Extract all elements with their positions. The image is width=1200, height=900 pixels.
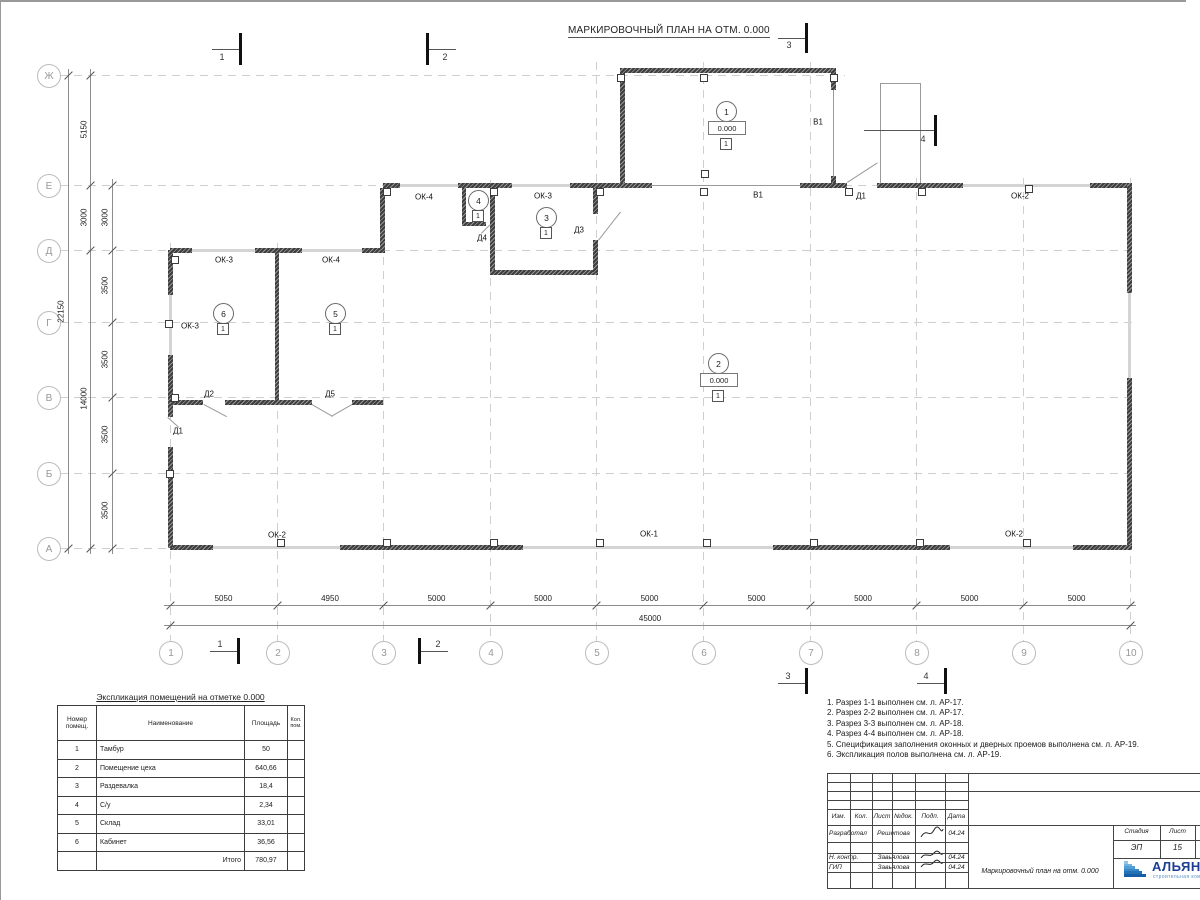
legend-cell: 1 <box>58 741 97 760</box>
tb-line <box>827 773 1200 774</box>
legend-table: Номер помещ. Наименование Площадь Кол. п… <box>57 705 305 871</box>
legend-row: 2Помещение цеха640,66 <box>58 759 305 778</box>
signature <box>919 859 944 870</box>
axis-bubble-row: А <box>37 537 61 561</box>
column-marker <box>596 188 604 196</box>
wall-segment <box>380 188 385 250</box>
wall-segment <box>170 248 192 253</box>
tb-line <box>827 862 968 863</box>
wall-segment <box>1073 545 1132 550</box>
legend-cell: Кабинет <box>97 833 245 852</box>
floor-type-marker: 1 <box>720 138 732 150</box>
legend-col-num: Номер помещ. <box>58 706 97 741</box>
signature <box>919 825 944 841</box>
section-cut-line <box>917 683 944 684</box>
tb-line <box>1113 840 1200 841</box>
tb-line <box>850 773 851 888</box>
dim-value: 45000 <box>625 614 675 623</box>
opening-label: Д2 <box>204 390 214 399</box>
section-cut-bar <box>944 668 947 694</box>
legend-col-area: Площадь <box>245 706 288 741</box>
wall-segment <box>462 222 486 226</box>
floor-type-marker: 1 <box>217 323 229 335</box>
opening-line <box>880 83 921 84</box>
window-glazing <box>400 184 458 187</box>
room-number: 3 <box>536 207 557 228</box>
tb-role-developer: Разработал <box>829 830 867 837</box>
tb-role-gip: ГИП <box>829 864 842 871</box>
dim-value: 3500 <box>101 490 110 530</box>
section-cut-bar <box>805 23 808 53</box>
opening-line <box>880 83 881 183</box>
column-marker <box>700 74 708 82</box>
legend-row: 5Склад33,01 <box>58 815 305 834</box>
drawing-title: МАРКИРОВОЧНЫЙ ПЛАН НА ОТМ. 0.000 <box>568 25 770 38</box>
door-swing <box>847 162 878 182</box>
tb-date-gip: 04.24 <box>945 864 968 871</box>
legend-cell: Помещение цеха <box>97 759 245 778</box>
opening-label: ОК-4 <box>415 193 433 202</box>
section-cut-line <box>429 49 456 50</box>
tb-stage-header: Стадия <box>1113 828 1160 835</box>
legend-cell: 4 <box>58 796 97 815</box>
dim-line <box>164 605 1136 606</box>
tb-line <box>1113 825 1114 888</box>
legend-cell: Итого <box>97 852 245 871</box>
legend-cell: 2,34 <box>245 796 288 815</box>
sheet-frame-line <box>0 2 1 889</box>
tb-date-developer: 04.24 <box>945 830 968 837</box>
section-cut-bar <box>237 638 240 664</box>
legend-row: 1Тамбур50 <box>58 741 305 760</box>
legend-cell <box>58 852 97 871</box>
tb-line <box>915 773 916 888</box>
section-cut-line <box>421 651 448 652</box>
column-marker <box>171 256 179 264</box>
room-number: 2 <box>708 353 729 374</box>
column-marker <box>383 539 391 547</box>
floor-type-marker: 1 <box>540 227 552 239</box>
axis-line-col <box>596 62 597 662</box>
tb-line <box>872 773 873 888</box>
tb-name-ncontrol: Завьялова <box>872 854 915 861</box>
legend-cell: 640,66 <box>245 759 288 778</box>
tb-line <box>827 800 968 801</box>
axis-bubble-col: 10 <box>1119 641 1143 665</box>
legend-cell <box>288 815 305 834</box>
tb-line <box>827 773 828 888</box>
column-marker <box>171 394 179 402</box>
opening-label: ОК-2 <box>1011 192 1029 201</box>
opening-label: В1 <box>753 191 763 200</box>
axis-bubble-row: Е <box>37 174 61 198</box>
tb-line <box>1160 825 1161 858</box>
legend-cell <box>288 833 305 852</box>
section-label: 4 <box>923 671 928 681</box>
dim-value: 4950 <box>305 594 355 603</box>
room-elevation: 0.000 <box>708 121 746 135</box>
tb-line <box>827 888 1200 889</box>
opening-label: Д3 <box>574 226 584 235</box>
opening-label: ОК-4 <box>322 256 340 265</box>
tb-line <box>827 842 968 843</box>
section-cut-line <box>778 683 805 684</box>
sheet-frame-line <box>0 1 1186 2</box>
section-label: 2 <box>442 52 447 62</box>
column-marker <box>596 539 604 547</box>
window-glazing <box>512 184 570 187</box>
axis-bubble-col: 5 <box>585 641 609 665</box>
tb-line <box>1195 825 1196 858</box>
axis-line-col <box>810 62 811 662</box>
note-line: 1. Разрез 1-1 выполнен см. л. АР-17. <box>827 698 964 707</box>
legend-row: 3Раздевалка18,4 <box>58 778 305 797</box>
column-marker <box>277 539 285 547</box>
legend-cell: Раздевалка <box>97 778 245 797</box>
tb-name-developer: Решетова <box>872 830 915 837</box>
wall-segment <box>458 183 512 188</box>
room-number: 5 <box>325 303 346 324</box>
title-block: Изм. Кол. Лист №док. Подп. Дата Разработ… <box>827 773 1200 888</box>
dim-value: 3500 <box>101 266 110 306</box>
section-cut-line <box>210 651 237 652</box>
column-marker <box>383 188 391 196</box>
wall-segment <box>170 545 213 550</box>
window-glazing <box>302 249 362 252</box>
tb-date-ncontrol: 04.24 <box>945 854 968 861</box>
dim-value: 5000 <box>838 594 888 603</box>
section-cut-bar <box>805 668 808 694</box>
axis-bubble-col: 7 <box>799 641 823 665</box>
legend-cell: 780,97 <box>245 852 288 871</box>
legend-cell: 50 <box>245 741 288 760</box>
dim-line <box>68 69 69 554</box>
room-legend: Экспликация помещений на отметке 0.000 Н… <box>57 692 304 871</box>
legend-cell: 33,01 <box>245 815 288 834</box>
dim-value: 5000 <box>732 594 782 603</box>
opening-line <box>920 83 921 183</box>
section-cut-bar <box>934 115 937 146</box>
opening-label: Д1 <box>173 427 183 436</box>
tb-col-list: Лист <box>872 813 892 820</box>
opening-label: ОК-1 <box>640 530 658 539</box>
drawing-sheet: ЖЕДГВБА1234567891010.000120.000131415161… <box>0 0 1200 900</box>
window-glazing <box>192 249 255 252</box>
section-label: 3 <box>786 40 791 50</box>
wall-segment <box>275 253 279 403</box>
wall-segment <box>1127 183 1132 293</box>
wall-segment <box>168 447 173 548</box>
wall-segment <box>490 188 495 275</box>
tb-line <box>827 825 1200 826</box>
opening-line <box>652 185 800 186</box>
tb-role-ncontrol: Н. контр. <box>829 854 858 861</box>
tb-stage-value: ЭП <box>1113 843 1160 852</box>
room-number: 1 <box>716 101 737 122</box>
dim-line <box>164 625 1136 626</box>
legend-cell <box>288 741 305 760</box>
door-swing <box>204 404 227 417</box>
tb-sheet-header: Лист <box>1160 828 1195 835</box>
window-glazing <box>523 546 773 549</box>
legend-cell: 3 <box>58 778 97 797</box>
tb-line <box>827 853 968 854</box>
wall-segment <box>800 183 847 188</box>
tb-line <box>827 782 968 783</box>
section-label: 1 <box>217 639 222 649</box>
dim-value: 5000 <box>412 594 462 603</box>
room-number: 4 <box>468 190 489 211</box>
floor-type-marker: 1 <box>329 323 341 335</box>
alliance-logo-icon <box>1124 861 1150 883</box>
legend-cell: Склад <box>97 815 245 834</box>
axis-line-col <box>916 178 917 662</box>
axis-line-col <box>1023 178 1024 662</box>
logo-subtitle: строительная компания <box>1153 874 1200 880</box>
column-marker <box>845 188 853 196</box>
axis-bubble-col: 8 <box>905 641 929 665</box>
legend-cell: 2 <box>58 759 97 778</box>
legend-cell: 18,4 <box>245 778 288 797</box>
section-label: 2 <box>435 639 440 649</box>
column-marker <box>918 188 926 196</box>
tb-line <box>945 773 946 888</box>
legend-col-count: Кол. пом. <box>288 706 305 741</box>
tb-line <box>892 773 893 888</box>
door-swing <box>312 404 333 417</box>
column-marker <box>703 539 711 547</box>
column-marker <box>490 539 498 547</box>
note-line: 6. Экспликация полов выполнена см. л. АР… <box>827 750 1001 759</box>
column-marker <box>700 188 708 196</box>
opening-label: Д1 <box>856 192 866 201</box>
opening-label: ОК-3 <box>215 256 233 265</box>
section-cut-bar <box>426 33 429 65</box>
column-marker <box>490 188 498 196</box>
column-marker <box>166 470 174 478</box>
dim-value: 3000 <box>80 197 89 237</box>
axis-bubble-col: 9 <box>1012 641 1036 665</box>
wall-segment <box>225 400 312 405</box>
floor-type-marker: 1 <box>712 390 724 402</box>
opening-label: В1 <box>813 118 823 127</box>
tb-sheet-value: 15 <box>1160 843 1195 852</box>
room-number: 6 <box>213 303 234 324</box>
section-cut-line <box>864 130 934 131</box>
dim-value: 3000 <box>101 197 110 237</box>
door-swing <box>598 212 621 241</box>
dim-value: 3500 <box>101 415 110 455</box>
dim-value: 22150 <box>57 291 66 331</box>
note-line: 5. Спецификация заполнения оконных и две… <box>827 740 1139 749</box>
legend-total-row: Итого780,97 <box>58 852 305 871</box>
section-cut-bar <box>418 638 421 664</box>
opening-label: ОК-3 <box>181 322 199 331</box>
opening-label: Д5 <box>325 390 335 399</box>
column-marker <box>701 170 709 178</box>
tb-line <box>827 809 968 810</box>
axis-bubble-row: В <box>37 386 61 410</box>
dim-value: 5000 <box>1052 594 1102 603</box>
wall-segment <box>593 240 598 273</box>
legend-cell <box>288 852 305 871</box>
legend-cell <box>288 796 305 815</box>
opening-label: ОК-2 <box>1005 530 1023 539</box>
dim-value: 14000 <box>80 379 89 419</box>
dim-value: 5000 <box>625 594 675 603</box>
window-glazing <box>1128 293 1131 378</box>
tb-line <box>827 791 1200 792</box>
axis-bubble-row: Ж <box>37 64 61 88</box>
legend-cell <box>288 778 305 797</box>
axis-bubble-col: 2 <box>266 641 290 665</box>
opening-label: ОК-3 <box>534 192 552 201</box>
legend-cell: 6 <box>58 833 97 852</box>
axis-line-col <box>383 243 384 662</box>
logo-text: АЛЬЯНС <box>1152 859 1200 874</box>
axis-bubble-col: 1 <box>159 641 183 665</box>
legend-cell <box>288 759 305 778</box>
dim-value: 5150 <box>80 110 89 150</box>
tb-col-kol: Кол. <box>850 813 872 820</box>
axis-bubble-col: 3 <box>372 641 396 665</box>
opening-line <box>833 90 834 176</box>
note-line: 4. Разрез 4-4 выполнен см. л. АР-18. <box>827 729 964 738</box>
column-marker <box>810 539 818 547</box>
wall-segment <box>168 355 173 417</box>
section-label: 3 <box>785 671 790 681</box>
logo-bar <box>1124 874 1146 877</box>
legend-row: 6Кабинет36,56 <box>58 833 305 852</box>
column-marker <box>916 539 924 547</box>
door-swing <box>331 404 352 417</box>
column-marker <box>165 320 173 328</box>
legend-cell: С/у <box>97 796 245 815</box>
legend-cell: Тамбур <box>97 741 245 760</box>
tb-line <box>968 773 969 888</box>
tb-col-podp: Подп. <box>915 813 945 820</box>
tb-name-gip: Завьялова <box>872 864 915 871</box>
section-cut-line <box>212 49 239 50</box>
column-marker <box>830 74 838 82</box>
tb-doc-title: Маркировочный план на отм. 0.000 <box>970 868 1110 875</box>
window-glazing <box>950 546 1073 549</box>
opening-label: Д4 <box>477 234 487 243</box>
wall-segment <box>462 188 466 226</box>
tb-col-izm: Изм. <box>827 813 850 820</box>
axis-bubble-row: Д <box>37 239 61 263</box>
legend-cell: 5 <box>58 815 97 834</box>
section-cut-line <box>778 38 805 39</box>
dim-value: 3500 <box>101 339 110 379</box>
note-line: 3. Разрез 3-3 выполнен см. л. АР-18. <box>827 719 964 728</box>
dim-value: 5000 <box>945 594 995 603</box>
wall-segment <box>1127 378 1132 548</box>
wall-segment <box>570 183 652 188</box>
axis-line-row <box>60 75 845 76</box>
axis-line-col <box>703 62 704 662</box>
tb-col-dok: №док. <box>892 813 915 820</box>
axis-bubble-col: 6 <box>692 641 716 665</box>
wall-segment <box>620 68 836 73</box>
column-marker <box>1023 539 1031 547</box>
dim-line <box>112 179 113 554</box>
wall-segment <box>352 400 383 405</box>
wall-segment <box>490 270 598 275</box>
room-elevation: 0.000 <box>700 373 738 387</box>
note-line: 2. Разрез 2-2 выполнен см. л. АР-17. <box>827 708 964 717</box>
axis-bubble-col: 4 <box>479 641 503 665</box>
opening-label: ОК-2 <box>268 531 286 540</box>
tb-col-data: Дата <box>945 813 968 820</box>
tb-line <box>827 872 968 873</box>
section-label: 4 <box>920 134 925 144</box>
floor-type-marker: 1 <box>472 210 484 222</box>
axis-bubble-row: Б <box>37 462 61 486</box>
section-cut-bar <box>239 33 242 65</box>
dim-value: 5000 <box>518 594 568 603</box>
legend-cell: 36,56 <box>245 833 288 852</box>
sheet-frame-line <box>0 889 1 900</box>
wall-segment <box>620 68 625 186</box>
section-label: 1 <box>219 52 224 62</box>
legend-title: Экспликация помещений на отметке 0.000 <box>57 692 304 702</box>
dim-value: 5050 <box>199 594 249 603</box>
legend-row: 4С/у2,34 <box>58 796 305 815</box>
dim-line <box>90 69 91 554</box>
column-marker <box>617 74 625 82</box>
wall-segment <box>1090 183 1132 188</box>
tb-line <box>1113 858 1200 859</box>
legend-col-name: Наименование <box>97 706 245 741</box>
